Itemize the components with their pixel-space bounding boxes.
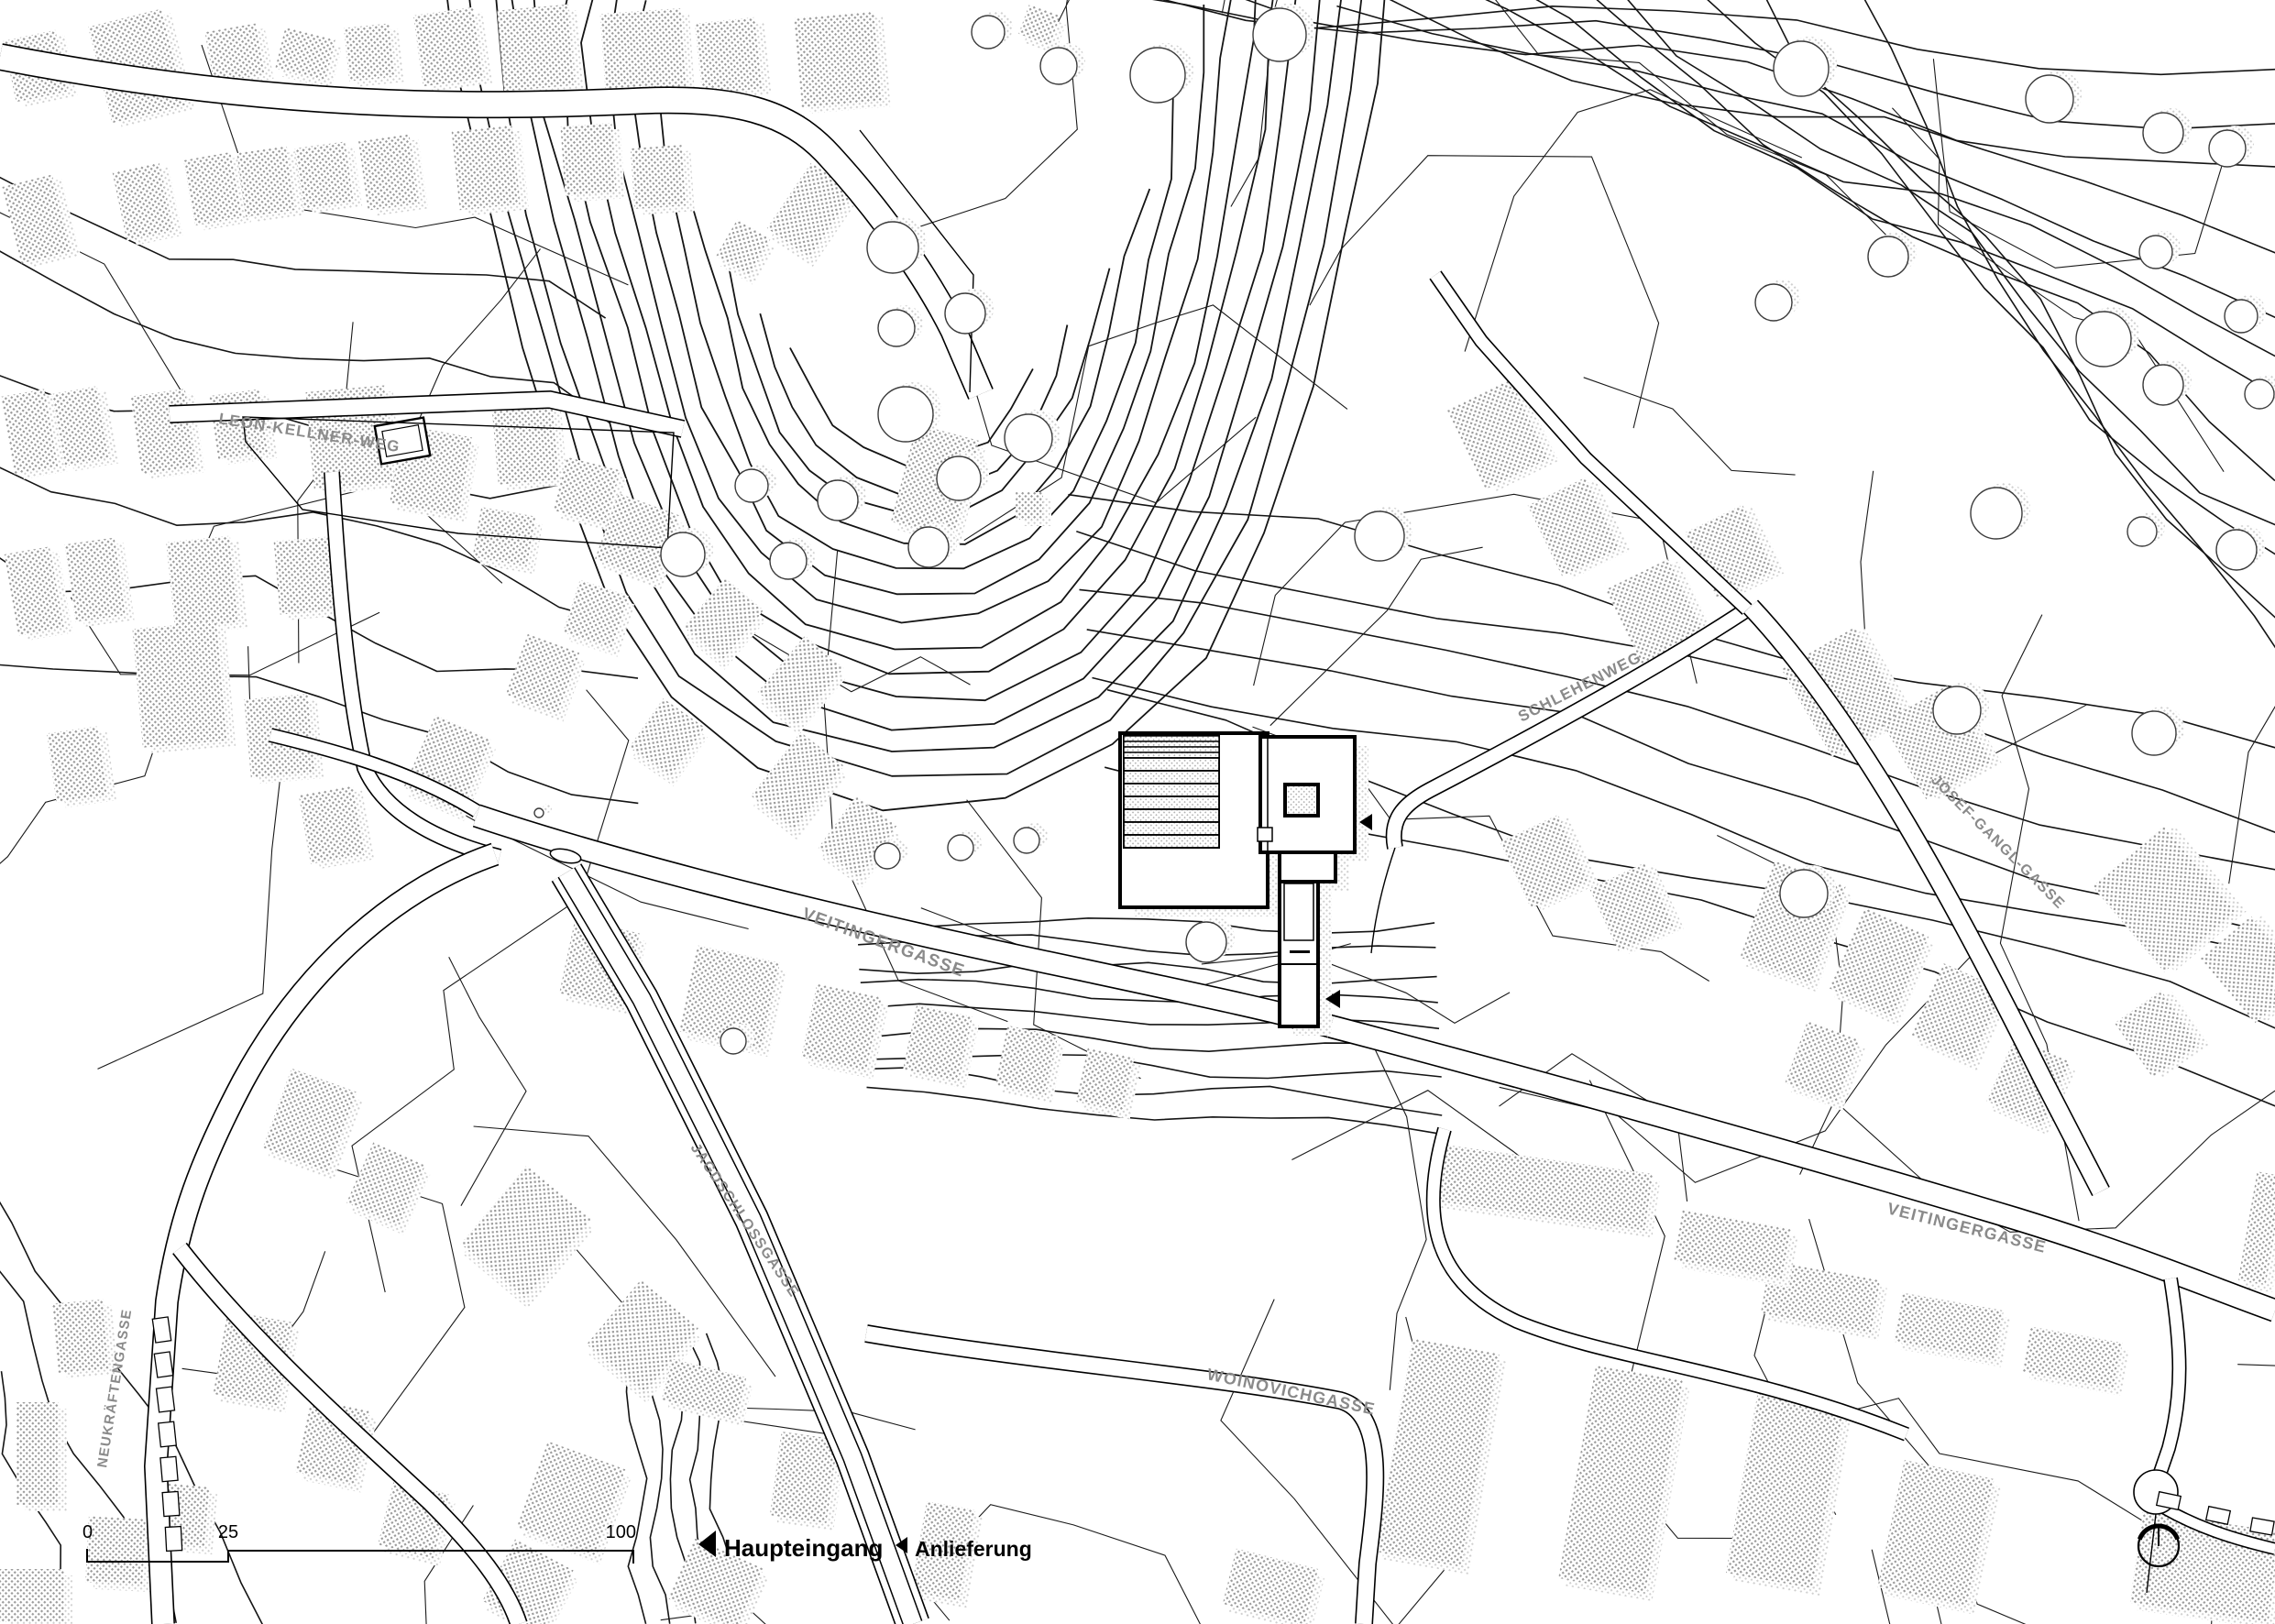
building-footprint — [461, 1166, 591, 1299]
tree-icon — [2127, 517, 2157, 546]
parcel-line — [0, 123, 196, 415]
building-footprint — [52, 1300, 109, 1374]
delivery-label: Anlieferung — [915, 1537, 1032, 1561]
building-footprint — [1558, 1365, 1683, 1593]
building-footprint — [274, 537, 335, 615]
building-footprint — [491, 401, 558, 484]
facade-notch — [1258, 828, 1272, 841]
parking-stub — [152, 1317, 170, 1343]
tree-icon — [1971, 488, 2022, 539]
tree-icon — [1355, 511, 1404, 561]
roof-stripe — [1124, 822, 1219, 835]
parking-stub — [156, 1387, 174, 1412]
tree-icon — [867, 222, 918, 273]
tree-icon — [2143, 365, 2183, 405]
tree-icon — [2076, 312, 2131, 367]
building-footprint — [770, 1432, 838, 1523]
roof-stripe — [1124, 741, 1219, 747]
building-footprint — [560, 123, 616, 196]
parcel-line — [952, 313, 1256, 503]
tree-icon — [2216, 530, 2257, 570]
parcel-line — [1465, 90, 1802, 352]
parcel-line — [2229, 347, 2275, 883]
tree-icon — [878, 387, 933, 442]
tree-icon — [1186, 922, 1226, 962]
building-footprint — [413, 7, 483, 86]
tree-icon — [1780, 870, 1828, 917]
contour-line — [1063, 0, 2275, 74]
tree-icon — [1755, 284, 1792, 321]
building-footprint — [629, 698, 704, 776]
parking-stub — [2250, 1518, 2274, 1535]
street-label-jagdschlossgasse: JAGDSCHLOSSGASSE — [687, 1141, 802, 1300]
tree-icon — [2143, 113, 2183, 153]
tree-icon — [1933, 686, 1981, 734]
tree-icon — [1130, 48, 1185, 103]
roof-stripe — [1124, 747, 1219, 752]
building-footprint — [236, 147, 295, 217]
contour-line — [1620, 0, 2275, 528]
building-footprint — [2115, 991, 2199, 1078]
contour-line — [1761, 0, 2275, 633]
parcel-line — [1371, 1041, 1426, 1390]
contour-line — [1420, 0, 2275, 359]
building-footprint — [452, 126, 521, 210]
tree-icon — [2225, 300, 2258, 333]
building-footprint — [794, 11, 882, 107]
tree-icon — [2245, 379, 2274, 409]
tree-icon — [1774, 41, 1829, 96]
tree-icon — [2139, 236, 2172, 269]
building-footprint — [344, 24, 395, 82]
tree-icon — [874, 843, 900, 869]
tree-icon — [534, 808, 544, 817]
building-footprint — [205, 24, 265, 83]
building-footprint — [133, 621, 227, 748]
main-entrance-label: Haupteingang — [724, 1534, 883, 1562]
building-footprint — [16, 1402, 59, 1505]
tree-icon — [2209, 130, 2246, 167]
roof-stripe — [1124, 835, 1219, 848]
building-footprint — [497, 5, 575, 91]
roof-stripe — [1124, 758, 1219, 771]
building-footprint — [631, 145, 686, 209]
tree-icon — [937, 456, 981, 500]
tree-icon — [1040, 48, 1077, 84]
tree-icon — [735, 469, 768, 502]
building-footprint — [1726, 1388, 1845, 1588]
building-footprint — [695, 17, 763, 94]
legend: Haupteingang Anlieferung — [698, 1531, 1032, 1562]
roof-stripe — [1124, 752, 1219, 758]
site-corridor-head — [1280, 852, 1335, 882]
tree-icon — [972, 16, 1005, 49]
building-footprint — [47, 726, 107, 802]
building-footprint — [1375, 1338, 1500, 1566]
parking-stub — [165, 1527, 181, 1552]
map-canvas: LEON-KELLNER-WEGVEITINGERGASSESCHLEHENWE… — [0, 0, 2275, 1624]
building-footprint — [166, 536, 239, 630]
building-footprint — [684, 578, 764, 660]
scale-label-100: 100 — [606, 1522, 636, 1542]
tree-icon — [2026, 75, 2073, 123]
site-ramp — [1284, 883, 1313, 940]
tree-shadow — [543, 804, 552, 813]
scale-label-0: 0 — [82, 1522, 93, 1542]
scale-label-25: 25 — [218, 1522, 238, 1542]
parking-stub — [160, 1456, 178, 1481]
tree-icon — [2132, 711, 2176, 755]
tree-icon — [1005, 414, 1052, 462]
building-footprint — [751, 732, 843, 829]
tree-icon — [1014, 828, 1039, 853]
parking-stub — [159, 1421, 177, 1447]
building-footprint — [85, 1516, 146, 1585]
contour-line — [1277, 0, 2275, 255]
tree-icon — [720, 1028, 746, 1054]
building-footprint — [130, 389, 195, 475]
tree-icon — [945, 293, 985, 334]
building-footprint — [64, 538, 125, 622]
parcel-line — [449, 957, 526, 1205]
roof-stripe — [1124, 796, 1219, 809]
tree-icon — [661, 532, 705, 576]
site-courtyard — [1285, 785, 1318, 816]
road-surface — [180, 1248, 519, 1624]
roof-stripe — [1124, 784, 1219, 796]
tree-icon — [770, 543, 807, 579]
roof-stripe — [1124, 771, 1219, 784]
building-footprint — [0, 1569, 64, 1622]
parcel-line — [1434, 0, 1897, 247]
site-dash — [1290, 950, 1310, 953]
tree-icon — [948, 835, 973, 861]
tree-icon — [818, 480, 858, 521]
parking-stub — [154, 1352, 172, 1377]
parking-stub — [162, 1491, 180, 1516]
building-footprint — [1016, 492, 1043, 520]
tree-icon — [878, 310, 915, 346]
tree-icon — [1868, 236, 1908, 277]
parcel-line — [1584, 378, 1796, 475]
site-plan-map: LEON-KELLNER-WEGVEITINGERGASSESCHLEHENWE… — [0, 0, 2275, 1624]
boundary-line — [1371, 848, 1395, 953]
building-footprint — [358, 134, 419, 210]
tree-icon — [1253, 8, 1306, 61]
building-footprint — [295, 141, 354, 208]
tree-icon — [908, 527, 949, 567]
roof-stripe — [1124, 809, 1219, 822]
parcel-line — [1047, 0, 1379, 44]
roof-stripe — [1124, 736, 1219, 741]
